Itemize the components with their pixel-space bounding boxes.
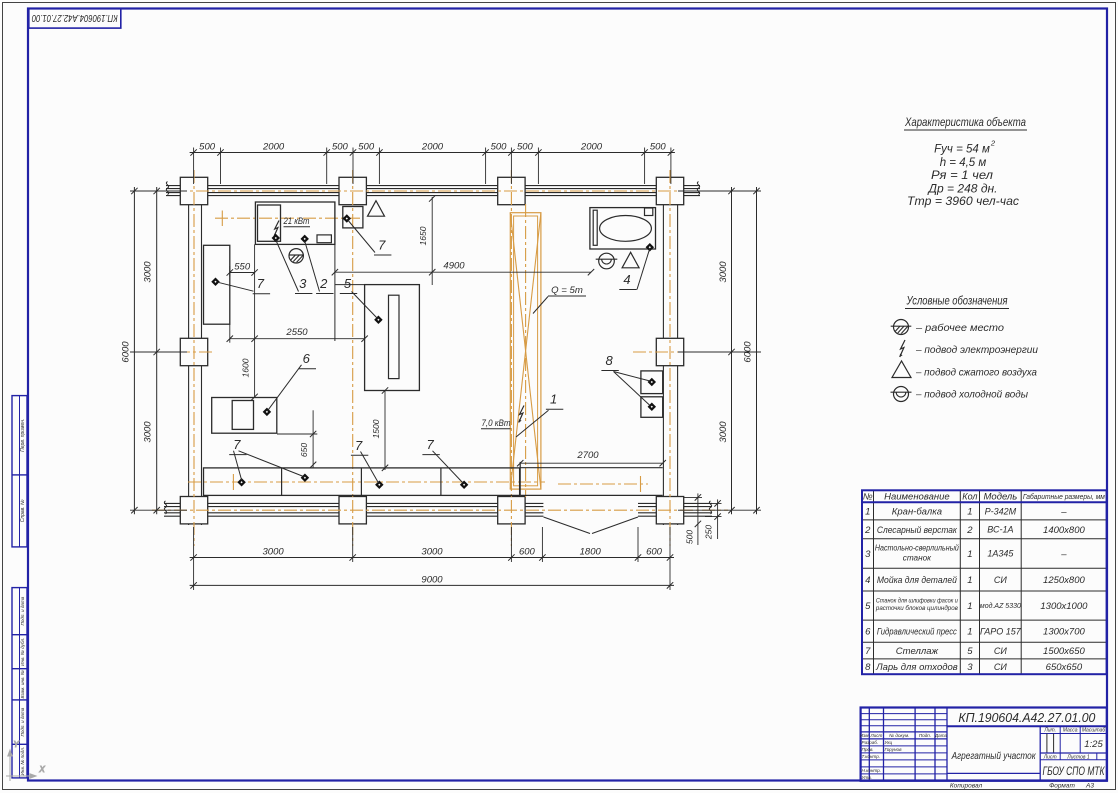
svg-text:550: 550 bbox=[234, 262, 251, 273]
svg-text:6000: 6000 bbox=[743, 341, 754, 363]
svg-text:5: 5 bbox=[344, 276, 352, 291]
svg-text:4900: 4900 bbox=[443, 261, 465, 272]
svg-text:2: 2 bbox=[864, 525, 871, 536]
svg-text:500: 500 bbox=[199, 142, 216, 153]
svg-text:3: 3 bbox=[299, 276, 307, 291]
svg-text:7: 7 bbox=[355, 438, 363, 453]
svg-text:Масштаб: Масштаб bbox=[1082, 728, 1106, 734]
svg-text:Формат: Формат bbox=[1049, 783, 1075, 790]
svg-text:Мойка для деталей: Мойка для деталей bbox=[877, 575, 958, 586]
svg-text:Инв. № подл.: Инв. № подл. bbox=[20, 747, 25, 776]
svg-text:6000: 6000 bbox=[121, 341, 132, 363]
svg-text:Станок для шлифовки фасок и: Станок для шлифовки фасок и bbox=[876, 598, 958, 605]
svg-text:Справ. №: Справ. № bbox=[20, 499, 26, 522]
svg-text:3000: 3000 bbox=[718, 421, 729, 443]
svg-text:500: 500 bbox=[358, 142, 375, 153]
svg-text:1: 1 bbox=[967, 575, 972, 586]
svg-text:3000: 3000 bbox=[718, 261, 729, 283]
svg-text:1650: 1650 bbox=[418, 226, 428, 245]
svg-text:Гидравлический пресс: Гидравлический пресс bbox=[877, 627, 957, 638]
svg-text:– подвод холодной воды: – подвод холодной воды bbox=[915, 389, 1028, 401]
svg-text:1400х800: 1400х800 bbox=[1043, 525, 1085, 536]
svg-text:2: 2 bbox=[319, 276, 328, 291]
svg-text:Дата: Дата bbox=[934, 733, 948, 738]
svg-text:650: 650 bbox=[299, 443, 309, 457]
svg-text:1600: 1600 bbox=[241, 358, 251, 377]
svg-text:2: 2 bbox=[990, 139, 996, 148]
svg-text:Др = 248 дн.: Др = 248 дн. bbox=[926, 184, 997, 196]
svg-text:2000: 2000 bbox=[421, 142, 444, 153]
svg-text:h = 4,5 м: h = 4,5 м bbox=[940, 157, 987, 169]
svg-text:А3: А3 bbox=[1085, 783, 1094, 790]
svg-text:Q = 5т: Q = 5т bbox=[551, 285, 583, 296]
svg-text:7: 7 bbox=[233, 437, 241, 452]
svg-text:Укц: Укц bbox=[885, 740, 893, 745]
svg-text:6: 6 bbox=[865, 627, 871, 638]
svg-text:2700: 2700 bbox=[576, 450, 599, 461]
svg-text:ВС-1А: ВС-1А bbox=[987, 525, 1013, 535]
svg-text:Лист: Лист bbox=[1043, 754, 1057, 760]
svg-text:Лит.: Лит. bbox=[1043, 728, 1056, 734]
svg-text:Характеристика объекта: Характеристика объекта bbox=[904, 115, 1026, 129]
svg-text:3000: 3000 bbox=[263, 547, 285, 558]
svg-text:8: 8 bbox=[865, 662, 871, 673]
svg-text:3: 3 bbox=[865, 549, 871, 560]
svg-text:– подвод электроэнергии: – подвод электроэнергии bbox=[915, 344, 1038, 356]
svg-text:Кол: Кол bbox=[962, 492, 977, 502]
svg-text:2000: 2000 bbox=[580, 142, 603, 153]
svg-text:1: 1 bbox=[967, 549, 972, 560]
svg-text:5: 5 bbox=[967, 646, 973, 657]
svg-text:3000: 3000 bbox=[143, 421, 154, 443]
svg-text:Масса: Масса bbox=[1063, 728, 1078, 734]
svg-text:1300х1000: 1300х1000 bbox=[1040, 601, 1088, 612]
svg-text:№: № bbox=[863, 492, 873, 502]
svg-text:Fуч = 54 м: Fуч = 54 м bbox=[934, 144, 990, 156]
svg-text:расточки блоков цилиндров: расточки блоков цилиндров bbox=[875, 605, 959, 612]
svg-text:4: 4 bbox=[623, 272, 630, 287]
svg-text:Условные обозначения: Условные обозначения bbox=[906, 294, 1008, 308]
svg-text:2: 2 bbox=[966, 525, 973, 536]
svg-text:Инв. № дубл.: Инв. № дубл. bbox=[20, 638, 25, 666]
svg-text:3: 3 bbox=[967, 662, 973, 673]
svg-text:–: – bbox=[1060, 507, 1067, 518]
svg-text:21 кВт: 21 кВт bbox=[283, 216, 310, 226]
svg-text:1:25: 1:25 bbox=[1084, 739, 1103, 750]
svg-text:2550: 2550 bbox=[285, 327, 308, 338]
svg-text:1500: 1500 bbox=[371, 419, 381, 438]
svg-text:500: 500 bbox=[491, 142, 508, 153]
svg-text:ГАРО 157: ГАРО 157 bbox=[980, 626, 1022, 636]
svg-text:600: 600 bbox=[519, 547, 536, 558]
svg-text:1: 1 bbox=[967, 627, 972, 638]
svg-text:Габаритные размеры, мм: Габаритные размеры, мм bbox=[1023, 492, 1105, 501]
svg-text:5: 5 bbox=[865, 601, 871, 612]
svg-text:– рабочее место: – рабочее место bbox=[915, 322, 1004, 334]
svg-text:1: 1 bbox=[865, 507, 870, 518]
svg-text:Копировал: Копировал bbox=[950, 783, 983, 790]
svg-text:Горунов: Горунов bbox=[885, 747, 903, 752]
svg-text:Подп. и дата: Подп. и дата bbox=[20, 707, 25, 736]
svg-text:1300х700: 1300х700 bbox=[1043, 627, 1085, 638]
svg-text:3000: 3000 bbox=[143, 261, 154, 283]
svg-text:Разраб.: Разраб. bbox=[862, 740, 879, 745]
svg-text:СИ: СИ bbox=[994, 646, 1007, 656]
svg-text:Тmp = 3960 чел-час: Тmp = 3960 чел-час bbox=[907, 196, 1019, 208]
svg-text:500: 500 bbox=[685, 530, 695, 544]
svg-text:Y: Y bbox=[13, 740, 19, 749]
svg-text:4: 4 bbox=[865, 575, 870, 586]
svg-text:– подвод сжатого воздуха: – подвод сжатого воздуха bbox=[915, 367, 1037, 379]
svg-text:Пров.: Пров. bbox=[862, 747, 874, 752]
svg-text:СИ: СИ bbox=[994, 575, 1007, 585]
svg-text:Агрегатный участок: Агрегатный участок bbox=[951, 751, 1037, 762]
svg-text:–: – bbox=[1060, 549, 1067, 560]
svg-text:Перв. примен.: Перв. примен. bbox=[20, 419, 26, 452]
svg-text:Лист: Лист bbox=[869, 733, 882, 738]
svg-text:Изм.: Изм. bbox=[860, 733, 870, 738]
svg-text:1: 1 bbox=[967, 601, 972, 612]
svg-text:1250х800: 1250х800 bbox=[1043, 575, 1085, 586]
svg-text:Подп. и дата: Подп. и дата bbox=[20, 596, 25, 625]
svg-text:Утв.: Утв. bbox=[862, 775, 872, 780]
svg-text:2000: 2000 bbox=[262, 142, 285, 153]
svg-text:Кран-балка: Кран-балка bbox=[892, 507, 942, 518]
svg-text:Модель: Модель bbox=[984, 492, 1018, 503]
svg-text:250: 250 bbox=[704, 525, 714, 540]
svg-text:Настольно-сверлильный: Настольно-сверлильный bbox=[875, 544, 959, 553]
svg-text:1: 1 bbox=[550, 392, 557, 407]
svg-text:650х650: 650х650 bbox=[1046, 662, 1083, 673]
svg-text:1: 1 bbox=[967, 507, 972, 518]
svg-text:600: 600 bbox=[646, 547, 663, 558]
svg-text:станок: станок bbox=[903, 554, 932, 563]
svg-text:Т.контр.: Т.контр. bbox=[862, 754, 881, 759]
svg-text:6: 6 bbox=[303, 351, 311, 366]
svg-text:7: 7 bbox=[257, 276, 265, 291]
svg-text:7,0 кВт: 7,0 кВт bbox=[482, 418, 511, 428]
svg-text:3000: 3000 bbox=[421, 547, 443, 558]
svg-text:Взам. инв. №: Взам. инв. № bbox=[20, 670, 25, 698]
svg-text:500: 500 bbox=[332, 142, 349, 153]
svg-text:Ря = 1 чел: Ря = 1 чел bbox=[931, 170, 994, 182]
svg-text:№ докум.: № докум. bbox=[889, 733, 909, 738]
svg-text:КП.190604.А42.27.01.00: КП.190604.А42.27.01.00 bbox=[958, 711, 1095, 725]
svg-text:мод.АZ 5330: мод.АZ 5330 bbox=[980, 602, 1021, 610]
svg-text:Подп.: Подп. bbox=[919, 733, 931, 738]
svg-text:7: 7 bbox=[865, 646, 871, 657]
svg-text:КП.190604.А42.27.01.00: КП.190604.А42.27.01.00 bbox=[31, 12, 117, 23]
svg-text:Листов 1: Листов 1 bbox=[1066, 754, 1090, 760]
svg-text:1800: 1800 bbox=[580, 547, 602, 558]
svg-text:СИ: СИ bbox=[994, 662, 1007, 672]
svg-text:8: 8 bbox=[605, 353, 613, 368]
svg-text:Стеллаж: Стеллаж bbox=[896, 646, 939, 657]
svg-text:7: 7 bbox=[378, 238, 386, 253]
svg-text:Ларь для отходов: Ларь для отходов bbox=[875, 662, 958, 673]
svg-text:1А345: 1А345 bbox=[987, 549, 1014, 559]
svg-text:7: 7 bbox=[426, 437, 434, 452]
svg-text:1500х650: 1500х650 bbox=[1043, 646, 1085, 657]
svg-text:ГБОУ СПО МТК: ГБОУ СПО МТК bbox=[1043, 766, 1106, 778]
svg-text:9000: 9000 bbox=[421, 574, 443, 585]
svg-text:Слесарный верстак: Слесарный верстак bbox=[877, 525, 957, 536]
svg-text:Р-342М: Р-342М bbox=[985, 506, 1017, 516]
svg-text:Н.контр.: Н.контр. bbox=[862, 768, 881, 773]
svg-text:X: X bbox=[38, 765, 45, 774]
svg-text:500: 500 bbox=[650, 142, 667, 153]
svg-text:Наименование: Наименование bbox=[884, 492, 950, 503]
svg-text:500: 500 bbox=[517, 142, 534, 153]
